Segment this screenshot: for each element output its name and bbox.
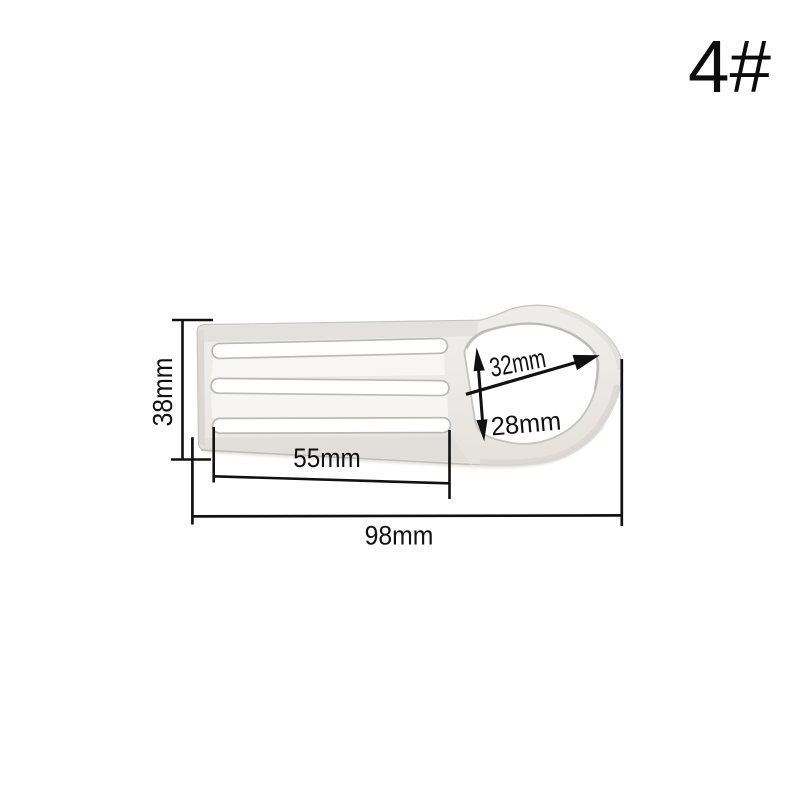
svg-text:4#: 4# [688, 25, 771, 108]
svg-text:55mm: 55mm [293, 443, 361, 473]
svg-text:38mm: 38mm [147, 358, 178, 427]
svg-text:28mm: 28mm [490, 405, 563, 441]
svg-text:98mm: 98mm [365, 521, 434, 551]
